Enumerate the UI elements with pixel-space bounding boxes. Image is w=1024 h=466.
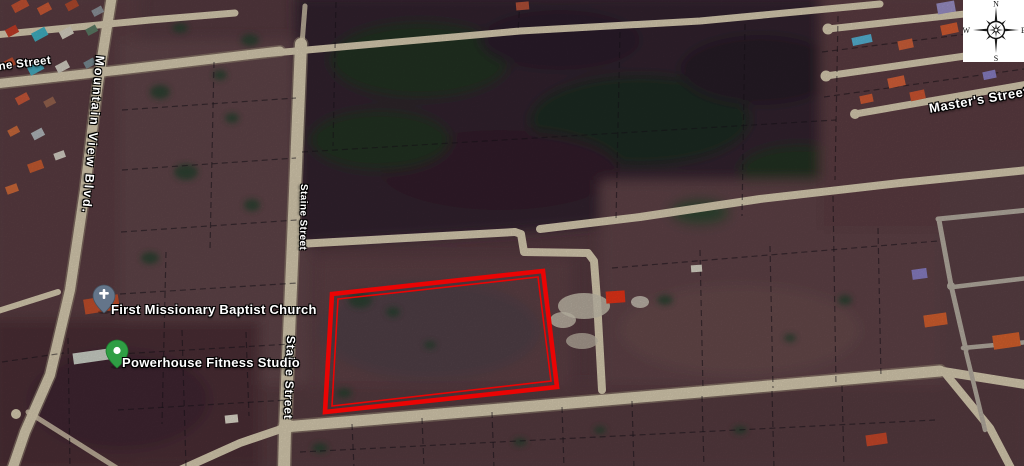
- compass-n-label: N: [993, 0, 999, 9]
- compass-star-icon: N S W E: [963, 0, 1024, 62]
- street-label-staine-street-upper: Staine Street: [297, 184, 308, 251]
- street-label-staine-street-lower: Staine Street: [282, 336, 297, 420]
- property-boundary-inner-line: [332, 277, 551, 406]
- property-outline-layer: [0, 0, 1024, 466]
- place-label-church: First Missionary Baptist Church: [111, 303, 317, 316]
- pin-dot: [113, 347, 120, 354]
- compass-w-label: W: [963, 26, 970, 35]
- place-label-fitness-studio: Powerhouse Fitness Studio: [122, 356, 300, 369]
- satellite-map: ne Street Mountain View Blvd. Staine Str…: [0, 0, 1024, 466]
- compass-s-label: S: [994, 54, 998, 62]
- compass-rose: N S W E: [963, 0, 1024, 62]
- property-boundary-polygon[interactable]: [325, 271, 557, 412]
